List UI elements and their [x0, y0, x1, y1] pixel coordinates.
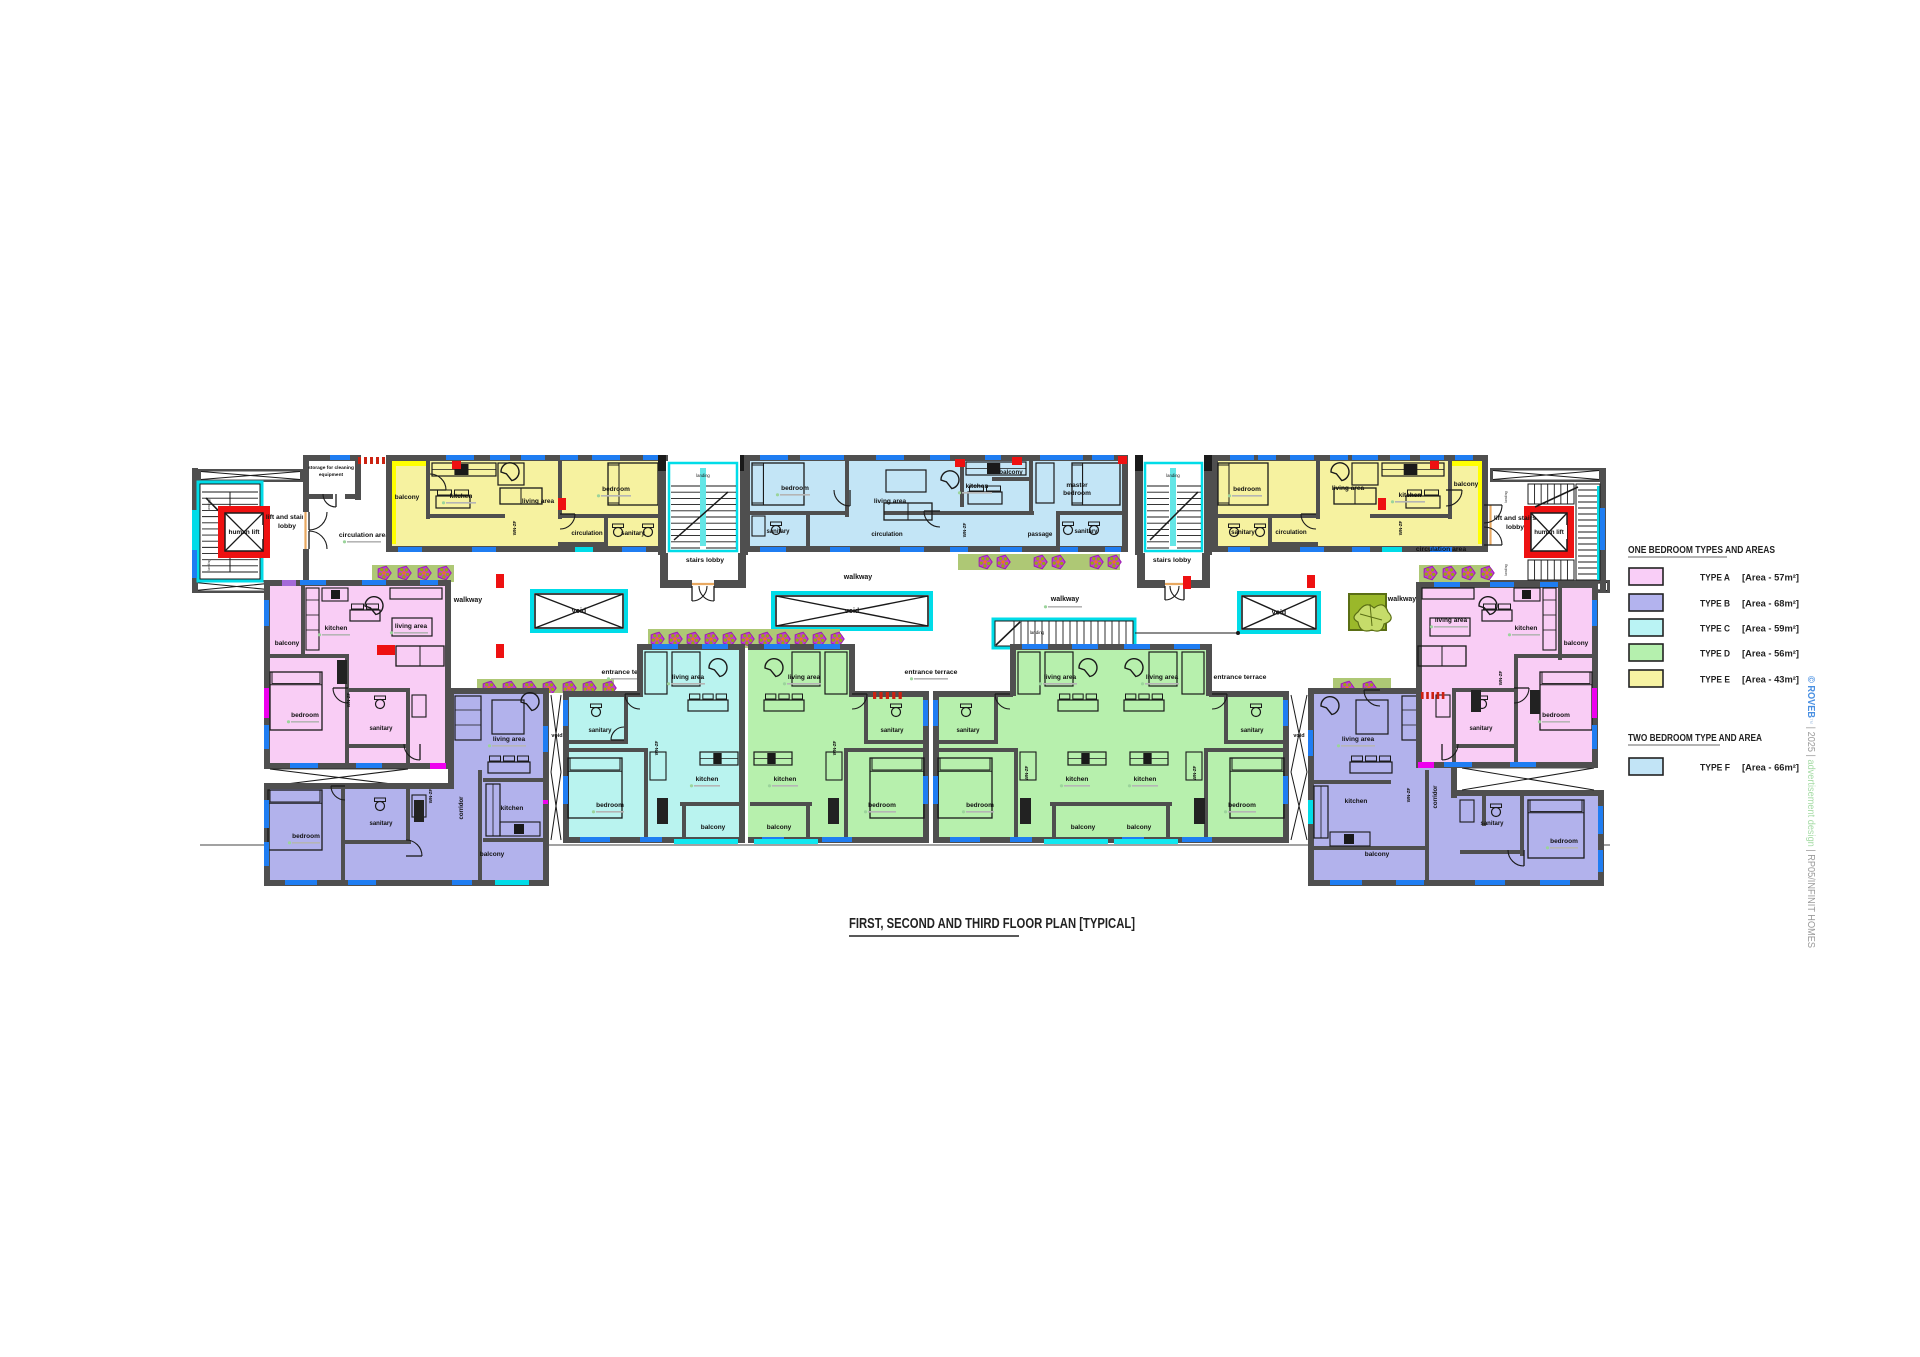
- svg-text:[Area - 59m²]: [Area - 59m²]: [1742, 624, 1799, 634]
- svg-text:balcony: balcony: [275, 640, 300, 647]
- svg-text:TYPE D: TYPE D: [1700, 649, 1730, 659]
- svg-text:TWO BEDROOM TYPE AND AREA: TWO BEDROOM TYPE AND AREA: [1628, 733, 1762, 744]
- svg-text:landing: landing: [1504, 564, 1508, 575]
- svg-text:WN-ZF: WN-ZF: [1192, 766, 1197, 781]
- svg-text:sanitary: sanitary: [588, 728, 612, 734]
- svg-text:sanitary: sanitary: [621, 530, 645, 537]
- svg-text:lobby: lobby: [278, 523, 296, 530]
- svg-text:storage for cleaning: storage for cleaning: [308, 465, 354, 471]
- svg-text:[Area - 43m²]: [Area - 43m²]: [1742, 675, 1799, 685]
- svg-text:entrance terrace: entrance terrace: [905, 669, 958, 676]
- svg-text:WN-ZF: WN-ZF: [1406, 788, 1411, 803]
- svg-text:balcony: balcony: [1071, 824, 1096, 831]
- svg-text:bedroom: bedroom: [1550, 838, 1578, 845]
- svg-text:bedroom: bedroom: [1228, 802, 1256, 809]
- svg-text:entrance terrace: entrance terrace: [1214, 674, 1267, 681]
- svg-text:living area: living area: [522, 498, 555, 505]
- svg-text:circulation: circulation: [871, 531, 903, 538]
- svg-text:living area: living area: [493, 736, 526, 743]
- svg-text:passage: passage: [1028, 531, 1053, 538]
- svg-text:WN-ZF: WN-ZF: [1398, 521, 1403, 536]
- svg-text:circulation area: circulation area: [1416, 546, 1466, 553]
- svg-text:living area: living area: [1044, 674, 1077, 681]
- svg-text:void: void: [572, 608, 586, 615]
- svg-text:ONE BEDROOM TYPES AND AREAS: ONE BEDROOM TYPES AND AREAS: [1628, 545, 1775, 556]
- svg-text:bedroom: bedroom: [1063, 490, 1091, 497]
- svg-text:void: void: [551, 733, 562, 739]
- svg-text:sanitary: sanitary: [880, 728, 904, 734]
- svg-text:sanitary: sanitary: [766, 529, 790, 535]
- svg-text:void: void: [845, 608, 859, 615]
- svg-text:walkway: walkway: [843, 574, 873, 581]
- svg-text:TYPE A: TYPE A: [1700, 573, 1730, 583]
- svg-text:[Area - 57m²]: [Area - 57m²]: [1742, 573, 1799, 583]
- svg-text:kitchen: kitchen: [501, 805, 524, 812]
- svg-text:kitchen: kitchen: [774, 776, 797, 783]
- svg-text:walkway: walkway: [1387, 596, 1417, 603]
- svg-text:human lift: human lift: [1534, 529, 1564, 536]
- svg-text:WN-ZF: WN-ZF: [512, 521, 517, 536]
- svg-text:sanitary: sanitary: [1240, 728, 1264, 734]
- svg-text:landing: landing: [1504, 491, 1508, 502]
- svg-text:[Area - 68m²]: [Area - 68m²]: [1742, 599, 1799, 609]
- svg-text:FIRST, SECOND AND THIRD FLOOR: FIRST, SECOND AND THIRD FLOOR PLAN [TYPI…: [849, 916, 1135, 932]
- svg-text:corridor: corridor: [459, 796, 465, 820]
- svg-text:sanitary: sanitary: [369, 821, 393, 827]
- svg-text:living area: living area: [672, 674, 705, 681]
- svg-text:bedroom: bedroom: [602, 486, 630, 493]
- svg-text:landing: landing: [696, 473, 710, 478]
- svg-text:[Area - 56m²]: [Area - 56m²]: [1742, 649, 1799, 659]
- svg-text:stairs lobby: stairs lobby: [686, 557, 724, 564]
- svg-text:sanitary: sanitary: [1074, 529, 1098, 535]
- svg-text:lift and stairs: lift and stairs: [1494, 515, 1537, 522]
- svg-text:sanitary: sanitary: [1469, 726, 1493, 732]
- svg-text:kitchen: kitchen: [1066, 776, 1089, 783]
- svg-text:kitchen: kitchen: [325, 625, 348, 632]
- svg-text:kitchen: kitchen: [966, 483, 989, 490]
- svg-text:living area: living area: [1435, 617, 1468, 624]
- svg-text:stairs lobby: stairs lobby: [1153, 557, 1191, 564]
- svg-text:landing: landing: [1030, 630, 1045, 635]
- svg-text:lift and stairs: lift and stairs: [266, 514, 309, 521]
- svg-text:walkway: walkway: [453, 597, 483, 604]
- svg-text:WN-ZF: WN-ZF: [962, 523, 967, 538]
- svg-text:corridor: corridor: [1433, 785, 1439, 809]
- svg-text:sanitary: sanitary: [1231, 529, 1255, 536]
- svg-text:bedroom: bedroom: [291, 712, 319, 719]
- svg-text:living area: living area: [1146, 674, 1179, 681]
- svg-text:WN-ZF: WN-ZF: [346, 693, 351, 708]
- svg-text:balcony: balcony: [1564, 640, 1589, 647]
- svg-text:living area: living area: [788, 674, 821, 681]
- svg-text:WN-ZF: WN-ZF: [1024, 766, 1029, 781]
- svg-text:landing: landing: [1166, 473, 1180, 478]
- svg-text:balcony: balcony: [1127, 824, 1152, 831]
- svg-text:bedroom: bedroom: [596, 802, 624, 809]
- svg-text:sanitary: sanitary: [1480, 821, 1504, 827]
- svg-text:walkway: walkway: [1050, 596, 1080, 603]
- svg-text:kitchen: kitchen: [450, 493, 473, 500]
- svg-text:balcony: balcony: [395, 494, 420, 501]
- svg-text:void: void: [1272, 610, 1286, 617]
- svg-text:balcony: balcony: [1365, 851, 1390, 858]
- svg-text:sanitary: sanitary: [369, 726, 393, 732]
- svg-text:circulation: circulation: [571, 530, 603, 537]
- svg-text:bedroom: bedroom: [292, 833, 320, 840]
- svg-text:kitchen: kitchen: [1134, 776, 1157, 783]
- svg-text:sanitary: sanitary: [956, 728, 980, 734]
- svg-text:kitchen: kitchen: [1345, 798, 1368, 805]
- svg-text:TYPE F: TYPE F: [1700, 763, 1730, 773]
- svg-text:kitchen: kitchen: [696, 776, 719, 783]
- svg-text:living area: living area: [874, 498, 907, 505]
- svg-text:human lift: human lift: [228, 529, 260, 536]
- svg-text:equipment: equipment: [319, 472, 344, 478]
- svg-text:bedroom: bedroom: [781, 485, 809, 492]
- svg-text:living area: living area: [1332, 485, 1365, 492]
- svg-text:balcony: balcony: [999, 469, 1023, 476]
- svg-text:master: master: [1066, 482, 1088, 489]
- svg-text:living area: living area: [1342, 736, 1375, 743]
- svg-text:balcony: balcony: [701, 824, 726, 831]
- svg-text:TYPE C: TYPE C: [1700, 624, 1730, 634]
- svg-text:living area: living area: [395, 623, 428, 630]
- svg-text:kitchen: kitchen: [1515, 625, 1538, 632]
- svg-text:bedroom: bedroom: [1542, 712, 1570, 719]
- svg-text:WN-ZF: WN-ZF: [1498, 671, 1503, 686]
- svg-text:landing: landing: [207, 499, 211, 510]
- svg-text:WN-ZF: WN-ZF: [654, 741, 659, 756]
- svg-text:TYPE E: TYPE E: [1700, 675, 1730, 685]
- svg-text:void: void: [1293, 733, 1304, 739]
- svg-text:balcony: balcony: [767, 824, 792, 831]
- svg-text:bedroom: bedroom: [1233, 486, 1261, 493]
- svg-text:WN-ZF: WN-ZF: [832, 741, 837, 756]
- svg-text:landing: landing: [207, 559, 211, 570]
- svg-text:balcony: balcony: [480, 851, 505, 858]
- svg-text:bedroom: bedroom: [868, 802, 896, 809]
- svg-text:bedroom: bedroom: [966, 802, 994, 809]
- svg-text:circulation area: circulation area: [339, 532, 389, 539]
- svg-text:TYPE B: TYPE B: [1700, 599, 1730, 609]
- svg-text:circulation: circulation: [1275, 529, 1307, 536]
- svg-text:WN-ZF: WN-ZF: [428, 789, 433, 804]
- svg-text:[Area - 66m²]: [Area - 66m²]: [1742, 763, 1799, 773]
- svg-text:balcony: balcony: [1454, 481, 1479, 488]
- svg-text:lobby: lobby: [1506, 524, 1524, 531]
- svg-text:kitchen: kitchen: [1399, 492, 1422, 499]
- svg-text:© ROVEB™ | 2025 | advertisemen: © ROVEB™ | 2025 | advertisement design |…: [1805, 676, 1817, 948]
